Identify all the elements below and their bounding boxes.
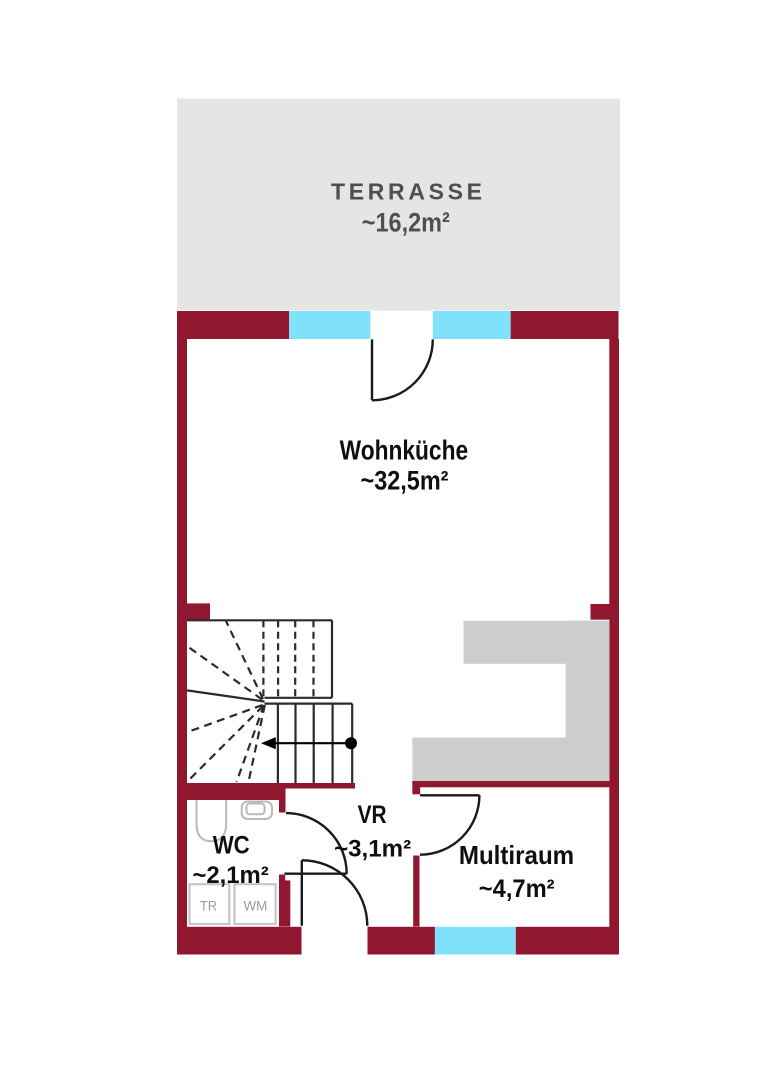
svg-text:~2,1m²: ~2,1m² — [192, 862, 268, 889]
svg-text:Wohnküche: Wohnküche — [340, 434, 469, 465]
svg-text:TR: TR — [200, 899, 218, 914]
svg-text:~32,5m²: ~32,5m² — [361, 465, 449, 495]
svg-text:~3,1m²: ~3,1m² — [334, 836, 411, 863]
svg-text:Multiraum: Multiraum — [459, 840, 574, 870]
svg-text:VR: VR — [358, 801, 387, 829]
svg-text:WM: WM — [244, 899, 268, 914]
svg-text:WC: WC — [213, 831, 250, 859]
svg-text:~16,2m²: ~16,2m² — [362, 208, 450, 238]
svg-text:~4,7m²: ~4,7m² — [479, 875, 555, 903]
